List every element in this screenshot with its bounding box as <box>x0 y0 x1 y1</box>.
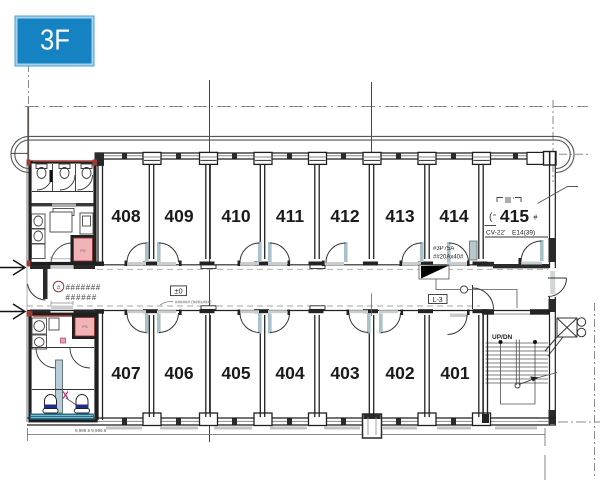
svg-text:9,999.9 9,999.9: 9,999.9 9,999.9 <box>75 428 107 433</box>
svg-text:#######: ####### <box>66 283 101 292</box>
svg-text:406: 406 <box>164 363 193 383</box>
svg-text:404: 404 <box>275 363 304 383</box>
svg-text:L-3: L-3 <box>432 297 442 304</box>
svg-text:414: 414 <box>439 206 468 226</box>
svg-text:CV-22': CV-22' <box>486 230 505 237</box>
svg-text:PS: PS <box>80 248 86 253</box>
svg-text:403: 403 <box>330 363 359 383</box>
svg-text:410: 410 <box>221 206 250 226</box>
svg-text:#: # <box>534 215 538 222</box>
svg-text:UP/DN: UP/DN <box>492 334 513 341</box>
svg-text:±0: ±0 <box>174 286 182 295</box>
svg-text:407: 407 <box>111 363 140 383</box>
svg-text:409: 409 <box>164 206 193 226</box>
svg-text:###### (###x###): ###### (###x###) <box>175 300 212 305</box>
svg-text:412: 412 <box>330 206 359 226</box>
svg-text:413: 413 <box>385 206 414 226</box>
svg-text:######: ###### <box>66 293 98 302</box>
svg-text:PS: PS <box>82 324 88 329</box>
svg-text:415: 415 <box>500 206 529 226</box>
svg-text:E14(39): E14(39) <box>512 230 535 237</box>
svg-text:##20Ax40#: ##20Ax40# <box>433 255 464 261</box>
svg-text:405: 405 <box>221 363 250 383</box>
svg-text:411: 411 <box>276 206 304 226</box>
svg-text:402: 402 <box>385 363 414 383</box>
svg-text:408: 408 <box>111 206 140 226</box>
svg-text:3F: 3F <box>40 25 70 57</box>
svg-text:#: # <box>57 285 61 292</box>
svg-text:401: 401 <box>440 363 469 383</box>
svg-text:#3P75A: #3P75A <box>433 246 454 252</box>
